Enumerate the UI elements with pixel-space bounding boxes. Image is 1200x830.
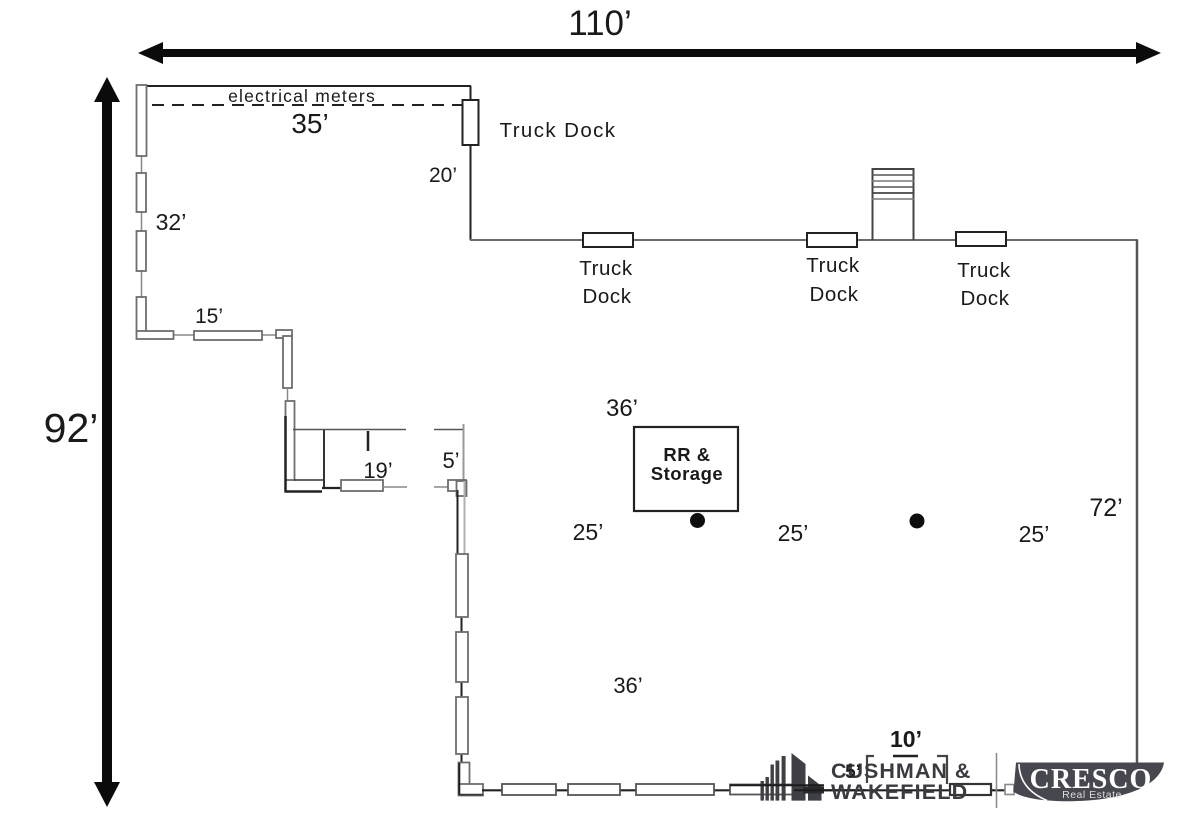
svg-text:Storage: Storage <box>651 463 723 484</box>
svg-text:110’: 110’ <box>568 4 632 43</box>
svg-text:10’: 10’ <box>890 726 922 752</box>
svg-text:36’: 36’ <box>613 673 642 698</box>
svg-text:32’: 32’ <box>156 209 187 235</box>
svg-text:15’: 15’ <box>195 305 223 328</box>
svg-text:25’: 25’ <box>778 520 809 546</box>
svg-text:72’: 72’ <box>1089 494 1122 522</box>
svg-text:35’: 35’ <box>291 108 328 139</box>
svg-text:Dock: Dock <box>809 283 858 306</box>
svg-text:5’: 5’ <box>845 762 861 783</box>
svg-text:Truck: Truck <box>806 254 860 277</box>
svg-text:20’: 20’ <box>429 164 457 187</box>
svg-text:Truck Dock: Truck Dock <box>500 119 617 142</box>
svg-text:36’: 36’ <box>606 395 638 422</box>
svg-text:WAKEFIELD: WAKEFIELD <box>831 780 968 804</box>
svg-text:25’: 25’ <box>573 519 604 545</box>
svg-text:Truck: Truck <box>957 259 1011 282</box>
svg-text:25’: 25’ <box>1019 521 1050 547</box>
svg-text:5’: 5’ <box>442 448 459 473</box>
svg-text:RR &: RR & <box>663 444 710 465</box>
svg-text:electrical meters: electrical meters <box>228 86 376 106</box>
svg-text:92’: 92’ <box>44 405 99 451</box>
svg-text:Dock: Dock <box>582 285 631 308</box>
svg-text:Truck: Truck <box>579 257 633 280</box>
svg-text:Dock: Dock <box>960 287 1009 310</box>
svg-text:Real Estate: Real Estate <box>1062 789 1122 801</box>
